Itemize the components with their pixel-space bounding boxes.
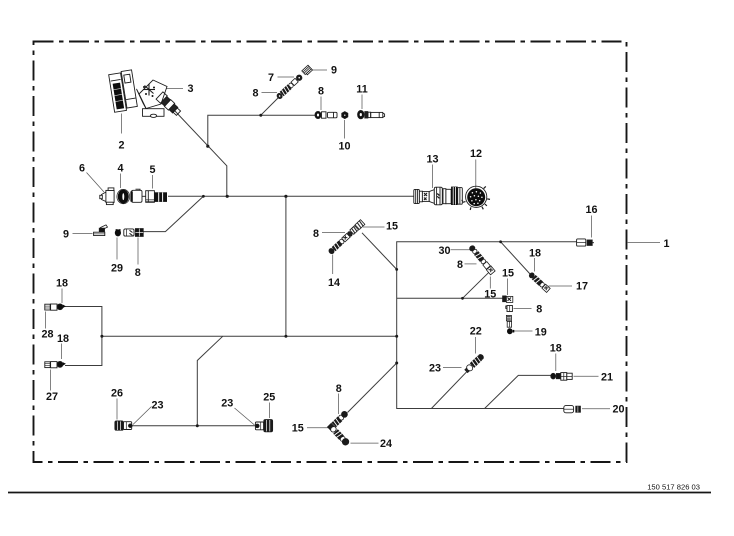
svg-text:4: 4 xyxy=(117,163,123,175)
svg-text:8: 8 xyxy=(318,86,324,98)
svg-text:27: 27 xyxy=(46,391,58,403)
svg-text:8: 8 xyxy=(313,228,319,240)
svg-text:17: 17 xyxy=(576,281,588,293)
svg-text:15: 15 xyxy=(484,289,496,301)
svg-text:18: 18 xyxy=(57,333,69,345)
svg-text:22: 22 xyxy=(470,326,482,338)
svg-text:12: 12 xyxy=(470,148,482,160)
svg-text:8: 8 xyxy=(457,259,463,271)
svg-text:1: 1 xyxy=(663,238,669,250)
svg-text:23: 23 xyxy=(151,399,163,411)
svg-text:3: 3 xyxy=(187,83,193,95)
svg-text:10: 10 xyxy=(338,141,350,153)
svg-text:150 517 826 03: 150 517 826 03 xyxy=(647,483,700,492)
svg-text:23: 23 xyxy=(429,362,441,374)
svg-text:29: 29 xyxy=(111,263,123,275)
svg-text:23: 23 xyxy=(221,398,233,410)
svg-text:13: 13 xyxy=(426,153,438,165)
svg-text:2: 2 xyxy=(118,140,124,152)
svg-text:19: 19 xyxy=(535,327,547,339)
svg-text:8: 8 xyxy=(536,304,542,316)
svg-text:6: 6 xyxy=(79,162,85,174)
svg-text:16: 16 xyxy=(585,204,597,216)
svg-text:5: 5 xyxy=(149,164,155,176)
svg-text:21: 21 xyxy=(601,371,613,383)
svg-text:14: 14 xyxy=(328,277,340,289)
svg-text:24: 24 xyxy=(380,438,392,450)
svg-text:18: 18 xyxy=(550,343,562,355)
svg-text:15: 15 xyxy=(292,423,304,435)
svg-text:28: 28 xyxy=(41,329,53,341)
svg-text:20: 20 xyxy=(612,404,624,416)
svg-text:26: 26 xyxy=(111,387,123,399)
svg-text:8: 8 xyxy=(135,267,141,279)
svg-text:15: 15 xyxy=(386,221,398,233)
svg-text:30: 30 xyxy=(438,245,450,257)
svg-text:8: 8 xyxy=(252,88,258,100)
svg-text:9: 9 xyxy=(331,65,337,77)
svg-text:7: 7 xyxy=(268,72,274,84)
svg-text:25: 25 xyxy=(263,391,275,403)
svg-text:15: 15 xyxy=(502,267,514,279)
svg-text:18: 18 xyxy=(529,248,541,260)
svg-text:11: 11 xyxy=(356,84,367,96)
svg-text:8: 8 xyxy=(336,383,342,395)
svg-text:18: 18 xyxy=(56,277,68,289)
svg-text:9: 9 xyxy=(63,229,69,241)
